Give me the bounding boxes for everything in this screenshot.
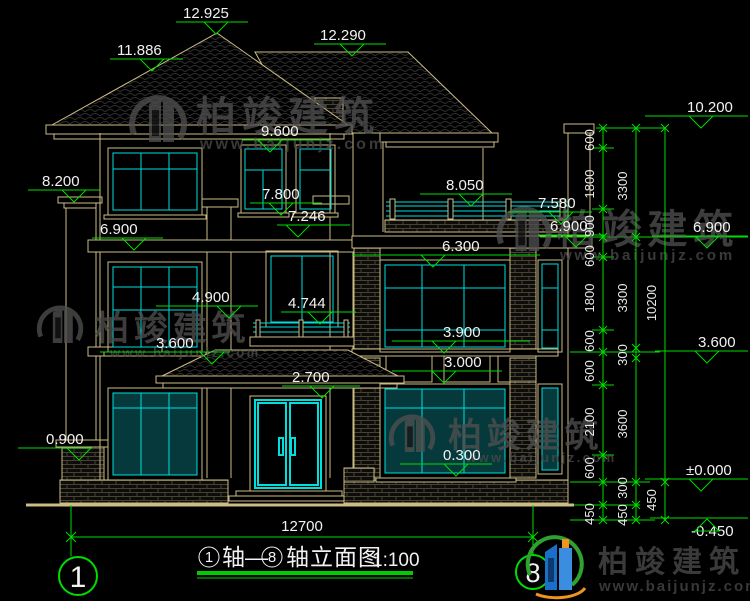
chain-dim-label: 450 — [615, 504, 630, 526]
rear-eave-fascia — [386, 142, 494, 147]
elevation-triangle — [689, 116, 713, 128]
entrance-door — [250, 396, 326, 491]
dimension-chain: 330033003003600300450 — [615, 124, 640, 526]
elevation-triangle — [286, 225, 310, 237]
elevation-label: 4.744 — [288, 295, 326, 312]
chain-dim-label: 3300 — [615, 284, 630, 313]
chain-dim-label: 600 — [582, 129, 597, 151]
axis-bubble-left: 1 — [59, 557, 97, 595]
elevation-label: 9.600 — [261, 123, 299, 140]
chain-dim-label: 600 — [582, 457, 597, 479]
bottom-dim-label: 12700 — [281, 518, 323, 535]
elevation-label: 11.886 — [117, 42, 162, 59]
chimney-cap-inner — [64, 203, 96, 208]
chimney-cap — [58, 197, 102, 203]
window-3f-stair-a — [238, 145, 289, 217]
elevation-label: 0.300 — [443, 447, 481, 464]
elevation-label: 4.900 — [192, 289, 230, 306]
window-3f-stair-b — [293, 145, 338, 217]
canopy-eave — [156, 376, 404, 383]
elevation-marker: 3.000 — [392, 354, 502, 383]
watermark: 柏竣建筑www.baijunjz.com — [132, 95, 386, 153]
elevation-marker: ±0.000 — [645, 462, 748, 491]
door-side-pier — [344, 468, 374, 482]
elevation-label: 6.900 — [100, 221, 138, 238]
slab-6900-left — [88, 240, 354, 252]
title-axis-right: 8 — [268, 549, 276, 566]
elevation-triangle — [689, 479, 713, 491]
chain-dim-label: 300 — [615, 344, 630, 366]
chain-dim-label: 3600 — [615, 410, 630, 439]
dimension-chain: 600180090060018006006002100600450 — [582, 124, 607, 525]
elevation-label: 8.200 — [42, 173, 80, 190]
elevation-label: 8.050 — [446, 177, 484, 194]
chain-dim-label: 1800 — [582, 170, 597, 199]
elevation-label: 3.600 — [156, 335, 194, 352]
entrance-steps — [222, 491, 356, 505]
elevation-triangle — [204, 22, 228, 34]
title-axis-left: 1 — [205, 549, 213, 566]
plinth-right — [344, 480, 568, 503]
sill-1f-right — [376, 478, 516, 482]
dimension-chain: 10200450 — [644, 124, 669, 524]
axis-bubble-right: 8 — [516, 555, 550, 589]
drawing-title: 1 轴— 8 轴立面图 1:100 — [197, 544, 420, 578]
axis-bubble-left-label: 1 — [70, 561, 87, 594]
elevation-label: 3.000 — [444, 354, 482, 371]
elevation-label: 3.600 — [698, 334, 736, 351]
terrace-slab — [385, 220, 568, 232]
window-2f-right-narrow — [538, 260, 562, 352]
chain-dim-label: 600 — [582, 245, 597, 267]
column-cap-left — [202, 199, 238, 207]
logo-url-text: www.baijunjz.com — [598, 578, 750, 595]
watermark-logo-icon — [39, 305, 81, 343]
chain-dim-label: 2100 — [582, 408, 597, 437]
title-suffix: 轴立面图 — [286, 544, 382, 570]
elevation-label: 0.900 — [46, 431, 84, 448]
window-1f-left — [108, 388, 202, 480]
elevation-marker: -0.450 — [650, 518, 748, 540]
canopy-fascia — [163, 383, 397, 388]
chain-dim-label: 600 — [582, 330, 597, 352]
elevation-label: 6.300 — [442, 238, 480, 255]
plinth-left — [60, 480, 228, 503]
chain-dim-label: 450 — [644, 489, 659, 511]
elevation-triangle — [459, 194, 483, 206]
elevation-label: 6.900 — [693, 219, 731, 236]
elevation-marker: 12.925 — [176, 5, 248, 34]
elevation-label: 7.800 — [262, 186, 300, 203]
elevation-label: 7.580 — [538, 195, 576, 212]
chain-dim-label: 600 — [582, 360, 597, 382]
brick-pier — [510, 243, 536, 352]
elevation-label: 2.700 — [292, 369, 330, 386]
elevation-triangle — [695, 351, 719, 363]
brick-pier — [354, 243, 380, 352]
chain-dim-label: 3300 — [615, 172, 630, 201]
elevation-marker: 3.600 — [655, 334, 748, 363]
chain-dim-label: 1800 — [582, 284, 597, 313]
elevation-label: 7.246 — [288, 208, 326, 225]
brand-logo: 柏竣建筑 www.baijunjz.com — [528, 537, 750, 598]
title-between: 轴— — [222, 544, 268, 570]
chain-dim-label: 900 — [582, 215, 597, 237]
balcony-slab-2f — [250, 337, 354, 346]
window-3f-left — [104, 148, 206, 219]
rear-eave — [380, 133, 498, 142]
elevation-marker: 7.246 — [277, 208, 350, 237]
elevation-marker: 10.200 — [645, 99, 748, 128]
chain-dim-label: 450 — [582, 503, 597, 525]
logo-brand-text: 柏竣建筑 — [598, 545, 746, 579]
elevation-label: 12.290 — [320, 27, 366, 44]
elevation-label: ±0.000 — [686, 462, 732, 479]
title-scale: 1:100 — [372, 550, 420, 571]
balcony-door-2f — [266, 251, 338, 327]
elevation-label: 3.900 — [443, 324, 481, 341]
elevation-label: 12.925 — [183, 5, 229, 22]
chain-dim-label: 10200 — [644, 285, 659, 321]
elevation-drawing: 柏竣建筑www.baijunjz.com柏竣建筑www.baijunjz.com… — [0, 0, 750, 601]
cad-viewport: 柏竣建筑www.baijunjz.com柏竣建筑www.baijunjz.com… — [0, 0, 750, 601]
chain-dim-label: 300 — [615, 477, 630, 499]
elevation-label: 10.200 — [687, 99, 733, 116]
